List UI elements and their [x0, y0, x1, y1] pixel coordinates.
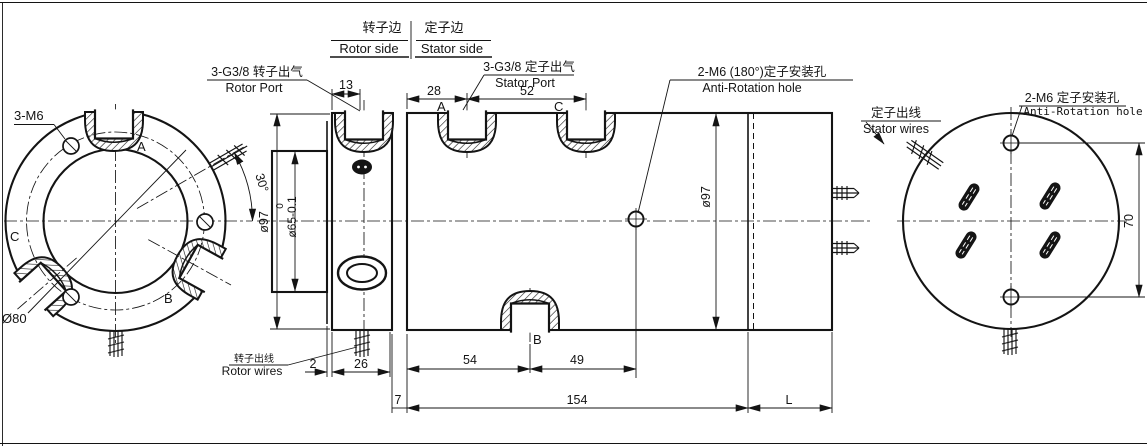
bolt-circle-dim: Ø80 — [2, 311, 27, 326]
stator-port-label-cn: 3-G3/8 定子出气 — [483, 59, 575, 74]
leader — [463, 75, 484, 110]
contact-slot-3 — [953, 229, 978, 260]
contact-slot-4 — [1037, 229, 1062, 260]
side-divider-header: 转子边 Rotor side 定子边 Stator side — [330, 20, 492, 59]
port-b-pos-dim: 54 — [463, 353, 477, 367]
stator-port-b-label: B — [533, 332, 542, 347]
anti-rotation-2m6-label-en: Anti-Rotation hole — [1023, 105, 1142, 118]
hole-span-dim: 70 — [1122, 214, 1136, 228]
wire-angle-dim: 30° — [252, 172, 271, 194]
rotor-port-label-cn: 3-G3/8 转子出气 — [211, 64, 303, 79]
engineering-drawing: 转子边 Rotor side 定子边 Stator side Ø80 — [0, 0, 1147, 446]
stator-od-dim: ø97 — [699, 186, 713, 208]
anti-rotation-180-label-en: Anti-Rotation hole — [702, 81, 801, 95]
m6-hole-2 — [197, 214, 213, 230]
callout-stator-wires: 定子出线 Stator wires — [861, 105, 941, 144]
rotor-wires-label-en: Rotor wires — [222, 364, 283, 378]
anti-rotation-2m6-label-cn: 2-M6 定子安装孔 — [1025, 90, 1120, 105]
rotor-wire-exit-30deg — [207, 140, 250, 173]
rotor-shaft-stub — [272, 151, 327, 292]
leader — [288, 347, 357, 365]
m6-hole-1 — [63, 138, 79, 154]
drawing-sheet: 转子边 Rotor side 定子边 Stator side Ø80 — [0, 0, 1147, 446]
gap-dim: 2 — [310, 357, 317, 371]
front-port-a-label: A — [137, 139, 146, 154]
callout-anti-rotation-2m6: 2-M6 定子安装孔 Anti-Rotation hole — [1012, 90, 1143, 136]
front-port-a — [85, 109, 143, 151]
rotor-wires-bundle — [354, 330, 370, 357]
custom-length-dim: L — [786, 393, 793, 407]
callout-rotor-wires: 转子出线 Rotor wires — [222, 347, 357, 378]
bolt-circle-leader — [28, 150, 186, 313]
anti-rotation-180-label-cn: 2-M6 (180°)定子安装孔 — [698, 64, 827, 79]
gap2-dim: 7 — [395, 393, 402, 407]
front-bottom-wires — [108, 330, 124, 357]
port-detail-dot — [364, 166, 367, 169]
contact-slot-1 — [956, 181, 981, 212]
hub-length-dim: 26 — [354, 357, 368, 371]
flange-thickness-dim: 13 — [339, 78, 353, 92]
anti-rotation-hole-bottom — [1000, 286, 1022, 308]
stator-side-label-cn: 定子边 — [424, 20, 463, 35]
front-view-rotor-flange: Ø80 30° A B C 3-M6 — [2, 104, 271, 357]
stator-terminal-2 — [833, 241, 859, 255]
shaft-od-dim: ø65-0.1 — [285, 196, 299, 238]
contact-slot-2 — [1037, 180, 1062, 211]
rotor-flange-od-dim: ø97 — [257, 211, 271, 233]
stator-port-c — [557, 110, 615, 152]
stator-wires-label-en: Stator wires — [863, 122, 929, 136]
leader — [638, 80, 670, 213]
front-port-c — [12, 247, 82, 318]
rotor-port-cavity — [335, 110, 393, 152]
front-port-c-label: C — [10, 229, 19, 244]
end-bottom-wires — [1002, 328, 1018, 355]
rotor-surface-port-inner — [347, 264, 377, 282]
leader — [1012, 106, 1022, 136]
front-port-b-label: B — [164, 291, 173, 306]
rotor-side-label-en: Rotor side — [339, 41, 398, 56]
stator-port-c-label: C — [554, 99, 563, 114]
mounting-holes-label: 3-M6 — [14, 108, 44, 123]
angle-dim-arc — [234, 153, 252, 221]
stator-port-a-label: A — [437, 99, 446, 114]
end-view-stator: 70 — [897, 107, 1145, 355]
wire-exit-centerline — [137, 146, 245, 209]
stator-side-label-en: Stator side — [421, 41, 483, 56]
section-view-stator: A C B ø97 — [407, 99, 859, 347]
callout-anti-rotation-180: 2-M6 (180°)定子安装孔 Anti-Rotation hole — [638, 64, 853, 213]
rotor-port-label-en: Rotor Port — [226, 81, 283, 95]
hole-offset-dim: 49 — [570, 353, 584, 367]
port-detail-dot — [357, 166, 360, 169]
rotor-surface-port-small — [352, 160, 372, 175]
body-length-dim: 154 — [567, 393, 588, 407]
anti-rotation-hole — [625, 208, 647, 230]
stator-terminal-1 — [833, 186, 859, 200]
anti-rotation-hole-top — [1000, 132, 1022, 154]
rotor-side-label-cn: 转子边 — [362, 20, 401, 35]
stator-port-a — [438, 110, 496, 152]
stator-wires-label-cn: 定子出线 — [871, 105, 922, 120]
m6-hole-3 — [63, 289, 79, 305]
port-a-dim: 28 — [427, 84, 441, 98]
section-view-rotor: ø97 0 ø65-0.1 — [257, 100, 393, 357]
port-ac-dim: 52 — [520, 84, 534, 98]
stator-port-b — [501, 291, 559, 333]
callout-rotor-port: 3-G3/8 转子出气 Rotor Port — [207, 64, 360, 111]
